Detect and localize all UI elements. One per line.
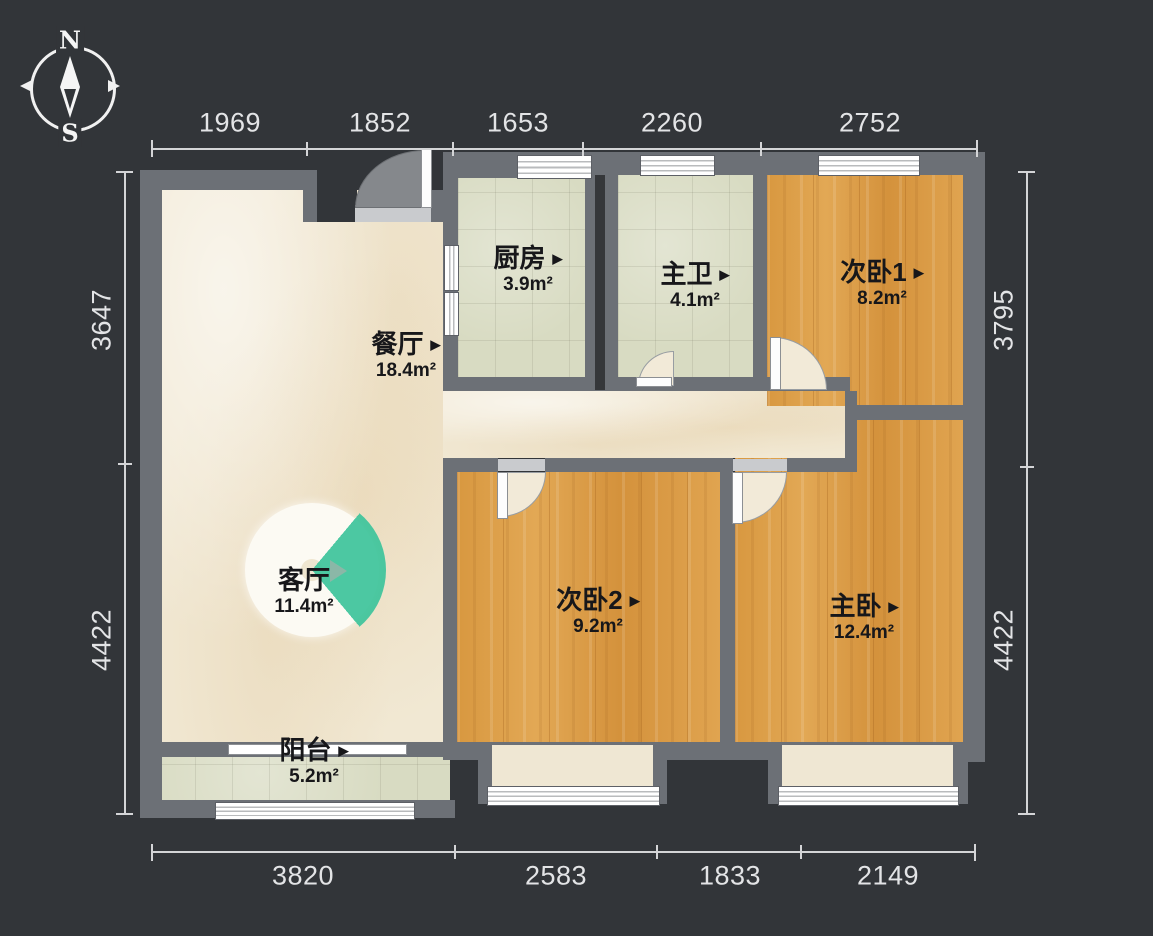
room-name: 次卧1 bbox=[840, 259, 906, 286]
master-bath-door-leaf bbox=[636, 377, 672, 387]
wall bbox=[845, 391, 857, 458]
room-name: 主卫 bbox=[660, 261, 712, 288]
entry-recess bbox=[317, 150, 357, 222]
dimension-value: 2149 bbox=[857, 861, 919, 892]
room-label-master-bath[interactable]: 主卫▶ 4.1m² bbox=[660, 261, 729, 311]
room-area: 3.9m² bbox=[503, 275, 553, 295]
living-dining-floor bbox=[162, 190, 443, 743]
dimension-tick bbox=[1018, 171, 1035, 173]
room-label-second-bedroom-2[interactable]: 次卧2▶ 9.2m² bbox=[556, 587, 639, 637]
dimension-value: 3647 bbox=[87, 289, 118, 351]
master-bedroom-door-leaf bbox=[732, 472, 743, 524]
compass-needle-south-inner bbox=[64, 89, 76, 109]
dimension-value: 3820 bbox=[272, 861, 334, 892]
dimension-tick bbox=[656, 845, 658, 859]
room-label-master-bedroom[interactable]: 主卧▶ 12.4m² bbox=[829, 593, 898, 643]
dimension-tick bbox=[454, 845, 456, 859]
dimension-tick bbox=[452, 142, 454, 156]
second-bedroom-1-window bbox=[818, 155, 920, 176]
wall bbox=[753, 152, 767, 391]
wall bbox=[303, 170, 317, 222]
dimension-value: 1852 bbox=[349, 108, 411, 139]
wall bbox=[605, 175, 618, 390]
label-arrow-icon: ▶ bbox=[914, 266, 924, 280]
dimension-value: 3795 bbox=[989, 289, 1020, 351]
label-arrow-icon: ▶ bbox=[431, 338, 441, 352]
room-name: 次卧2 bbox=[556, 587, 622, 614]
wall bbox=[443, 377, 770, 391]
dimension-tick bbox=[306, 142, 308, 156]
room-name: 主卧 bbox=[829, 593, 881, 620]
dimension-tick bbox=[800, 845, 802, 859]
room-label-balcony[interactable]: 阳台▶ 5.2m² bbox=[279, 737, 348, 787]
dimension-tick bbox=[976, 140, 978, 157]
dimension-value: 2260 bbox=[641, 108, 703, 139]
dimension-tick bbox=[116, 813, 133, 815]
wall bbox=[545, 458, 733, 472]
room-area: 9.2m² bbox=[573, 617, 623, 637]
dimension-line-bottom bbox=[152, 851, 976, 853]
compass-north-label: N bbox=[56, 26, 84, 55]
dimension-value: 2583 bbox=[525, 861, 587, 892]
wall bbox=[443, 458, 457, 742]
kitchen-pass-window bbox=[444, 292, 459, 336]
second-bedroom-2-window bbox=[487, 786, 660, 806]
room-area: 8.2m² bbox=[857, 289, 907, 309]
compass-west-arrow-icon bbox=[20, 80, 32, 92]
dimension-line-left bbox=[124, 172, 126, 815]
duct-shaft bbox=[595, 175, 605, 390]
kitchen-pass-window bbox=[444, 245, 459, 291]
room-area: 18.4m² bbox=[376, 361, 436, 381]
second-bedroom-2-door-leaf bbox=[497, 472, 508, 519]
master-bath-window bbox=[640, 155, 715, 176]
door-threshold bbox=[733, 459, 787, 471]
compass-needle-north bbox=[60, 56, 80, 87]
dimension-value: 1833 bbox=[699, 861, 761, 892]
dimension-tick bbox=[974, 844, 976, 861]
bay-window-floor bbox=[492, 745, 653, 788]
door-threshold bbox=[498, 459, 545, 471]
dimension-tick bbox=[582, 142, 584, 156]
room-name: 客厅 bbox=[278, 567, 330, 594]
room-name: 阳台 bbox=[279, 737, 331, 764]
dimension-tick bbox=[760, 142, 762, 156]
dimension-line-top bbox=[152, 148, 978, 150]
bay-window-floor bbox=[782, 745, 953, 788]
room-area: 11.4m² bbox=[274, 597, 333, 617]
wall bbox=[857, 405, 968, 420]
dimension-tick bbox=[116, 171, 133, 173]
label-arrow-icon: ▶ bbox=[720, 268, 730, 282]
room-label-living[interactable]: 客厅 11.4m² bbox=[274, 567, 333, 617]
compass-east-arrow-icon bbox=[108, 80, 120, 92]
room-label-second-bedroom-1[interactable]: 次卧1▶ 8.2m² bbox=[840, 259, 923, 309]
room-name: 厨房 bbox=[493, 245, 545, 272]
wall bbox=[787, 458, 857, 472]
floor-plan-canvas: 厨房▶ 3.9m² 主卫▶ 4.1m² 次卧1▶ 8.2m² 餐厅▶ 18.4m… bbox=[0, 0, 1153, 936]
dimension-tick bbox=[118, 463, 132, 465]
wall bbox=[140, 170, 162, 818]
room-area: 12.4m² bbox=[834, 623, 894, 643]
label-arrow-icon: ▶ bbox=[630, 594, 640, 608]
room-name: 餐厅 bbox=[371, 331, 423, 358]
dimension-value: 1653 bbox=[487, 108, 549, 139]
dimension-tick bbox=[151, 844, 153, 861]
master-bedroom-window bbox=[778, 786, 959, 806]
dimension-value: 1969 bbox=[199, 108, 261, 139]
dimension-tick bbox=[151, 140, 153, 157]
dimension-value: 2752 bbox=[839, 108, 901, 139]
kitchen-window bbox=[517, 155, 592, 179]
room-label-kitchen[interactable]: 厨房▶ 3.9m² bbox=[493, 245, 562, 295]
entry-door-leaf bbox=[421, 149, 432, 208]
wall bbox=[140, 170, 317, 190]
compass-south-label: S bbox=[58, 119, 81, 148]
dimension-tick bbox=[1018, 813, 1035, 815]
dimension-tick bbox=[1020, 466, 1034, 468]
entry-door-arc bbox=[355, 150, 425, 208]
balcony-window bbox=[215, 802, 415, 820]
wall bbox=[963, 152, 985, 762]
label-arrow-icon: ▶ bbox=[339, 744, 349, 758]
room-area: 4.1m² bbox=[670, 291, 720, 311]
room-label-dining[interactable]: 餐厅▶ 18.4m² bbox=[371, 331, 440, 381]
label-arrow-icon: ▶ bbox=[889, 600, 899, 614]
second-bedroom-1-door-leaf bbox=[770, 337, 781, 390]
dimension-value: 4422 bbox=[989, 609, 1020, 671]
room-area: 5.2m² bbox=[289, 767, 339, 787]
wall bbox=[585, 175, 595, 390]
dimension-line-right bbox=[1026, 172, 1028, 815]
label-arrow-icon: ▶ bbox=[553, 252, 563, 266]
dimension-value: 4422 bbox=[87, 609, 118, 671]
